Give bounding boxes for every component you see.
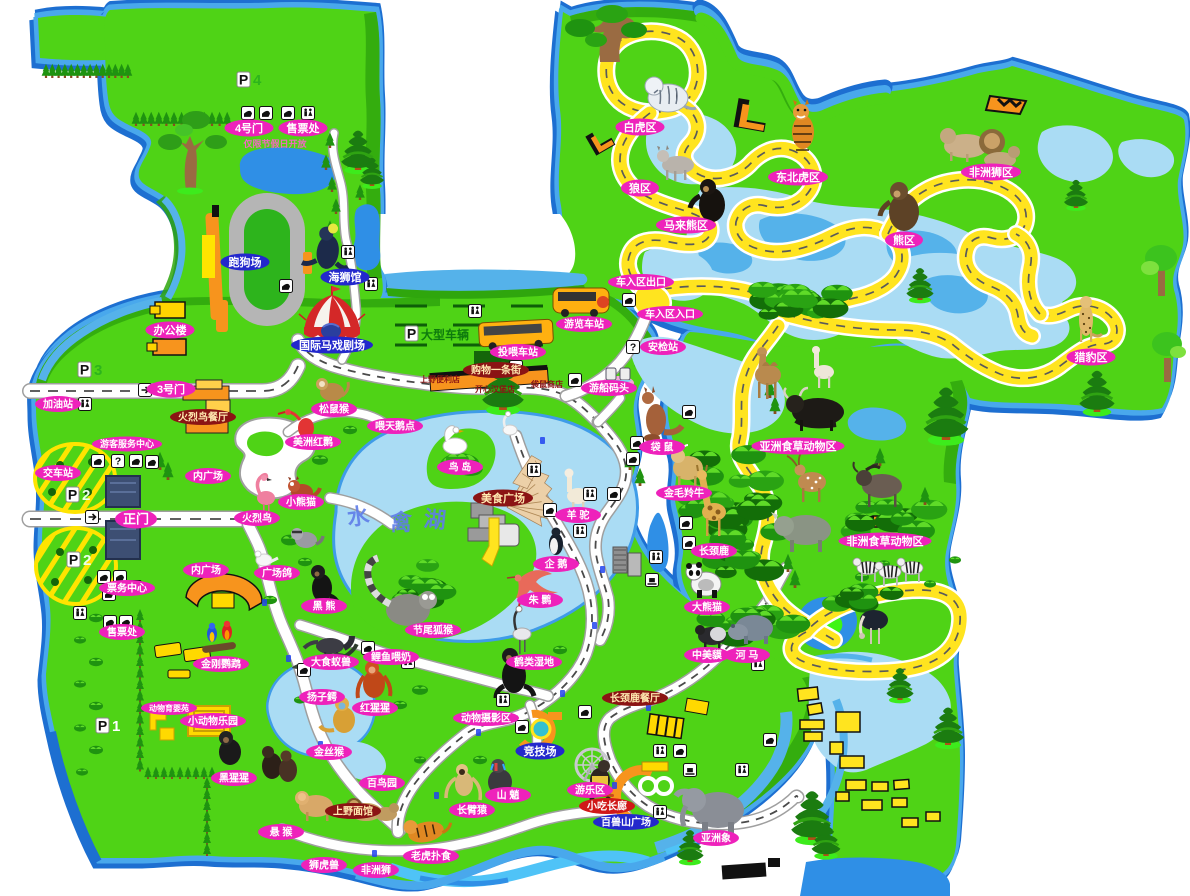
- svg-text:非洲食草动物区: 非洲食草动物区: [847, 534, 924, 548]
- svg-text:海狮馆: 海狮馆: [329, 270, 362, 284]
- svg-text:东北虎区: 东北虎区: [776, 170, 820, 184]
- svg-text:P: P: [98, 718, 107, 734]
- svg-text:车入区入口: 车入区入口: [645, 308, 695, 321]
- svg-text:动物育婴苑: 动物育婴苑: [149, 703, 189, 713]
- svg-text:湖: 湖: [423, 506, 448, 533]
- svg-text:游船码头: 游船码头: [589, 382, 629, 395]
- svg-text:游客服务中心: 游客服务中心: [100, 438, 154, 449]
- svg-text:美洲红鹮: 美洲红鹮: [293, 436, 333, 449]
- svg-text:狼区: 狼区: [629, 181, 651, 195]
- svg-text:火烈鸟餐厅: 火烈鸟餐厅: [178, 411, 228, 424]
- svg-text:熊区: 熊区: [893, 233, 915, 247]
- svg-text:羊 驼: 羊 驼: [567, 509, 590, 522]
- svg-text:长颈鹿: 长颈鹿: [699, 545, 729, 558]
- svg-text:内广场: 内广场: [191, 564, 221, 577]
- svg-text:安检站: 安检站: [648, 341, 678, 354]
- svg-text:非洲狮: 非洲狮: [361, 864, 391, 877]
- svg-text:节尾狐猴: 节尾狐猴: [413, 624, 454, 637]
- svg-text:金丝猴: 金丝猴: [313, 746, 345, 759]
- svg-text:火烈鸟: 火烈鸟: [242, 512, 272, 525]
- svg-text:2: 2: [83, 552, 91, 569]
- svg-text:4号门: 4号门: [235, 121, 263, 135]
- svg-text:P: P: [239, 72, 248, 88]
- svg-text:美食广场: 美食广场: [481, 491, 525, 505]
- svg-text:松鼠猴: 松鼠猴: [319, 403, 350, 416]
- svg-text:金毛羚牛: 金毛羚牛: [663, 487, 704, 500]
- svg-text:车入区出口: 车入区出口: [616, 276, 666, 289]
- svg-text:购物一条街: 购物一条街: [471, 364, 521, 377]
- svg-text:红猩猩: 红猩猩: [360, 702, 390, 715]
- svg-text:悬 猴: 悬 猴: [269, 826, 294, 839]
- svg-text:亚洲食草动物区: 亚洲食草动物区: [760, 439, 837, 453]
- svg-text:小吃长廊: 小吃长廊: [586, 800, 627, 813]
- svg-text:鹤类湿地: 鹤类湿地: [513, 656, 554, 669]
- svg-text:国际马戏剧场: 国际马戏剧场: [299, 338, 365, 352]
- svg-text:P: P: [69, 552, 78, 568]
- svg-text:大熊猫: 大熊猫: [692, 601, 722, 614]
- svg-text:正门: 正门: [123, 512, 149, 527]
- svg-text:P: P: [407, 326, 416, 342]
- svg-text:百兽山广场: 百兽山广场: [601, 816, 651, 829]
- svg-text:交车站: 交车站: [43, 467, 73, 480]
- svg-text:猎豹区: 猎豹区: [1075, 350, 1108, 364]
- svg-text:袋鼠商店: 袋鼠商店: [530, 379, 563, 389]
- svg-text:企 鹅: 企 鹅: [544, 558, 568, 571]
- svg-text:百鸟园: 百鸟园: [367, 777, 397, 790]
- svg-text:跑狗场: 跑狗场: [229, 255, 262, 269]
- svg-text:大食蚁兽: 大食蚁兽: [311, 656, 351, 669]
- svg-text:上野便利店: 上野便利店: [420, 374, 460, 384]
- svg-text:老虎扑食: 老虎扑食: [410, 850, 452, 863]
- svg-text:禽: 禽: [389, 510, 413, 535]
- svg-text:鲤鱼喂奶: 鲤鱼喂奶: [370, 651, 411, 664]
- svg-text:鸟 岛: 鸟 岛: [449, 461, 472, 474]
- svg-text:内广场: 内广场: [193, 470, 223, 483]
- svg-text:售票处: 售票处: [286, 121, 321, 135]
- svg-text:中美貘: 中美貘: [692, 649, 723, 662]
- svg-text:长颈鹿餐厅: 长颈鹿餐厅: [610, 692, 660, 705]
- svg-text:广场鸽: 广场鸽: [262, 567, 292, 580]
- svg-text:游览车站: 游览车站: [564, 318, 604, 331]
- svg-text:竞技场: 竞技场: [524, 744, 557, 758]
- svg-text:?: ?: [630, 343, 636, 354]
- svg-text:长臂猿: 长臂猿: [457, 804, 488, 817]
- svg-text:白虎区: 白虎区: [624, 120, 657, 134]
- svg-text:朱 鹮: 朱 鹮: [529, 594, 552, 607]
- svg-text:黑 熊: 黑 熊: [313, 600, 336, 613]
- svg-text:3: 3: [94, 362, 102, 379]
- svg-text:P: P: [68, 487, 77, 503]
- svg-text:2: 2: [82, 487, 90, 504]
- svg-text:P: P: [80, 362, 89, 378]
- svg-text:马来熊区: 马来熊区: [664, 218, 708, 232]
- svg-text:山 魈: 山 魈: [497, 789, 520, 802]
- svg-text:袋 鼠: 袋 鼠: [650, 441, 674, 454]
- svg-text:大型车辆: 大型车辆: [421, 327, 469, 342]
- svg-text:黑猩猩: 黑猩猩: [219, 772, 249, 785]
- svg-text:小动物乐园: 小动物乐园: [187, 715, 238, 728]
- svg-text:办公楼: 办公楼: [154, 323, 187, 337]
- svg-text:仅限节假日开放: 仅限节假日开放: [242, 138, 307, 149]
- svg-text:售票处: 售票处: [107, 626, 138, 639]
- svg-text:上野面馆: 上野面馆: [333, 805, 373, 818]
- svg-text:非洲狮区: 非洲狮区: [969, 165, 1013, 179]
- svg-text:狮虎兽: 狮虎兽: [308, 859, 339, 872]
- svg-text:票务中心: 票务中心: [107, 582, 147, 595]
- svg-text:河 马: 河 马: [736, 650, 759, 662]
- svg-text:扬子鳄: 扬子鳄: [307, 691, 337, 704]
- svg-text:?: ?: [115, 457, 121, 468]
- svg-text:投喂车站: 投喂车站: [498, 346, 538, 359]
- svg-text:金刚鹦鹉: 金刚鹦鹉: [200, 658, 241, 671]
- svg-text:开心汉堡店: 开心汉堡店: [475, 384, 515, 394]
- svg-text:动物摄影区: 动物摄影区: [461, 712, 511, 725]
- svg-text:小熊猫: 小熊猫: [285, 496, 316, 509]
- svg-text:3号门: 3号门: [157, 382, 185, 396]
- svg-text:亚洲象: 亚洲象: [701, 832, 731, 845]
- svg-text:4: 4: [253, 72, 262, 89]
- svg-text:水: 水: [345, 502, 371, 530]
- svg-text:1: 1: [112, 718, 120, 735]
- svg-text:游乐区: 游乐区: [575, 784, 605, 797]
- svg-text:加油站: 加油站: [42, 398, 73, 411]
- svg-text:喂天鹅点: 喂天鹅点: [375, 420, 415, 433]
